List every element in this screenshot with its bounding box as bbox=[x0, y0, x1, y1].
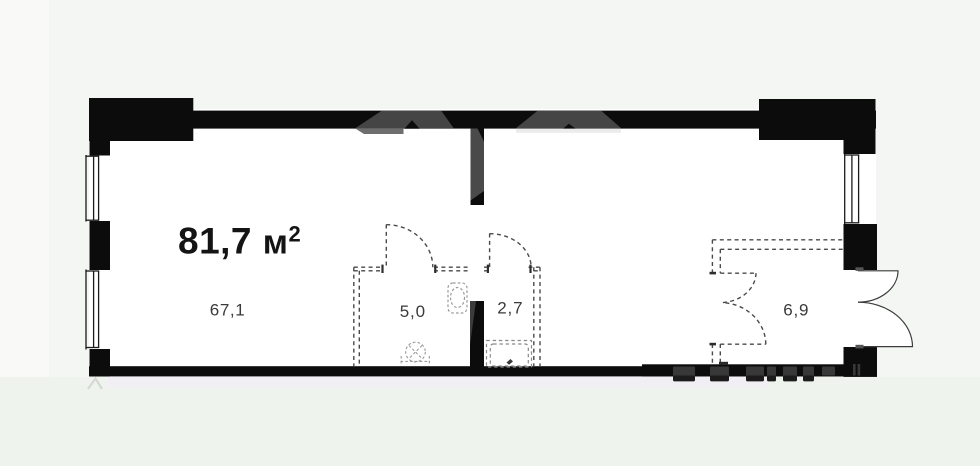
svg-text:5,0: 5,0 bbox=[400, 302, 426, 321]
svg-text:81,7 м2: 81,7 м2 bbox=[178, 220, 301, 261]
svg-text:67,1: 67,1 bbox=[210, 300, 246, 319]
svg-text:6,9: 6,9 bbox=[783, 300, 809, 319]
svg-text:2,7: 2,7 bbox=[497, 298, 523, 317]
